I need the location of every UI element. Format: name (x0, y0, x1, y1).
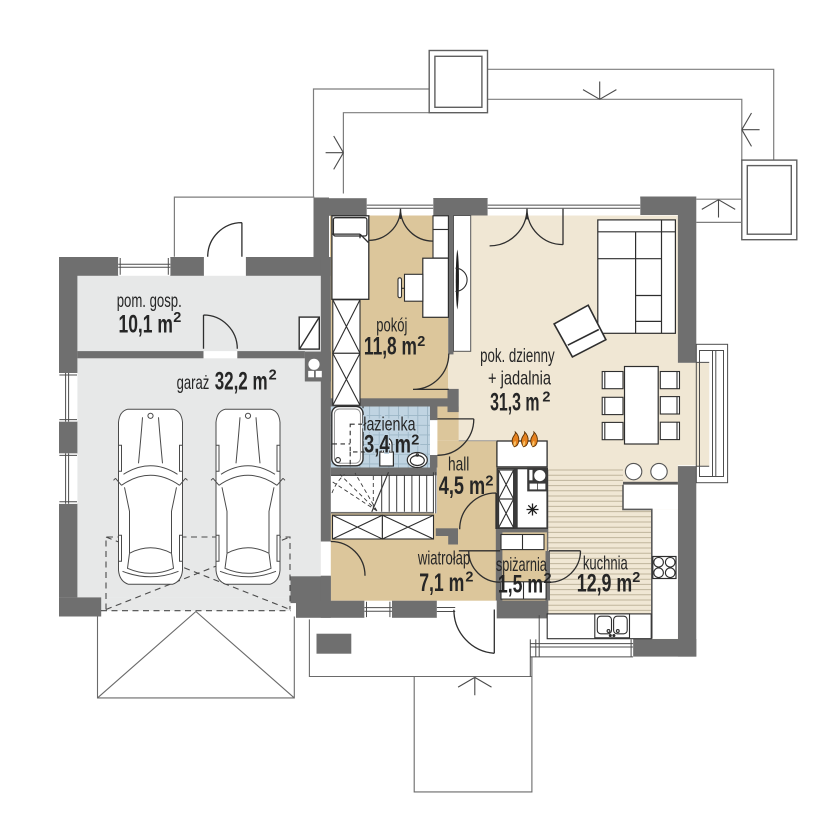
svg-text:2: 2 (632, 570, 640, 586)
svg-text:10,1 m: 10,1 m (119, 311, 173, 339)
svg-text:3,4 m: 3,4 m (364, 431, 411, 459)
svg-text:+ jadalnia: + jadalnia (488, 367, 551, 389)
svg-text:2: 2 (485, 473, 493, 489)
svg-text:garaż: garaż (177, 372, 210, 394)
svg-text:wiatrołap: wiatrołap (417, 548, 470, 570)
svg-text:4,5 m: 4,5 m (439, 472, 485, 500)
svg-text:32,2 m: 32,2 m (215, 368, 268, 396)
svg-text:2: 2 (411, 433, 419, 449)
svg-text:pom. gosp.: pom. gosp. (117, 290, 182, 312)
svg-text:1,5 m: 1,5 m (498, 570, 543, 598)
svg-text:2: 2 (465, 570, 473, 586)
svg-text:11,8 m: 11,8 m (364, 333, 417, 361)
svg-text:31,3 m: 31,3 m (490, 389, 539, 417)
svg-text:2: 2 (269, 368, 277, 384)
svg-text:2: 2 (542, 390, 550, 406)
svg-text:7,1 m: 7,1 m (419, 569, 464, 597)
svg-text:pok. dzienny: pok. dzienny (480, 345, 555, 367)
svg-text:12,9 m: 12,9 m (577, 570, 632, 598)
svg-text:2: 2 (173, 310, 181, 326)
svg-text:2: 2 (544, 571, 552, 587)
svg-text:2: 2 (417, 334, 425, 350)
